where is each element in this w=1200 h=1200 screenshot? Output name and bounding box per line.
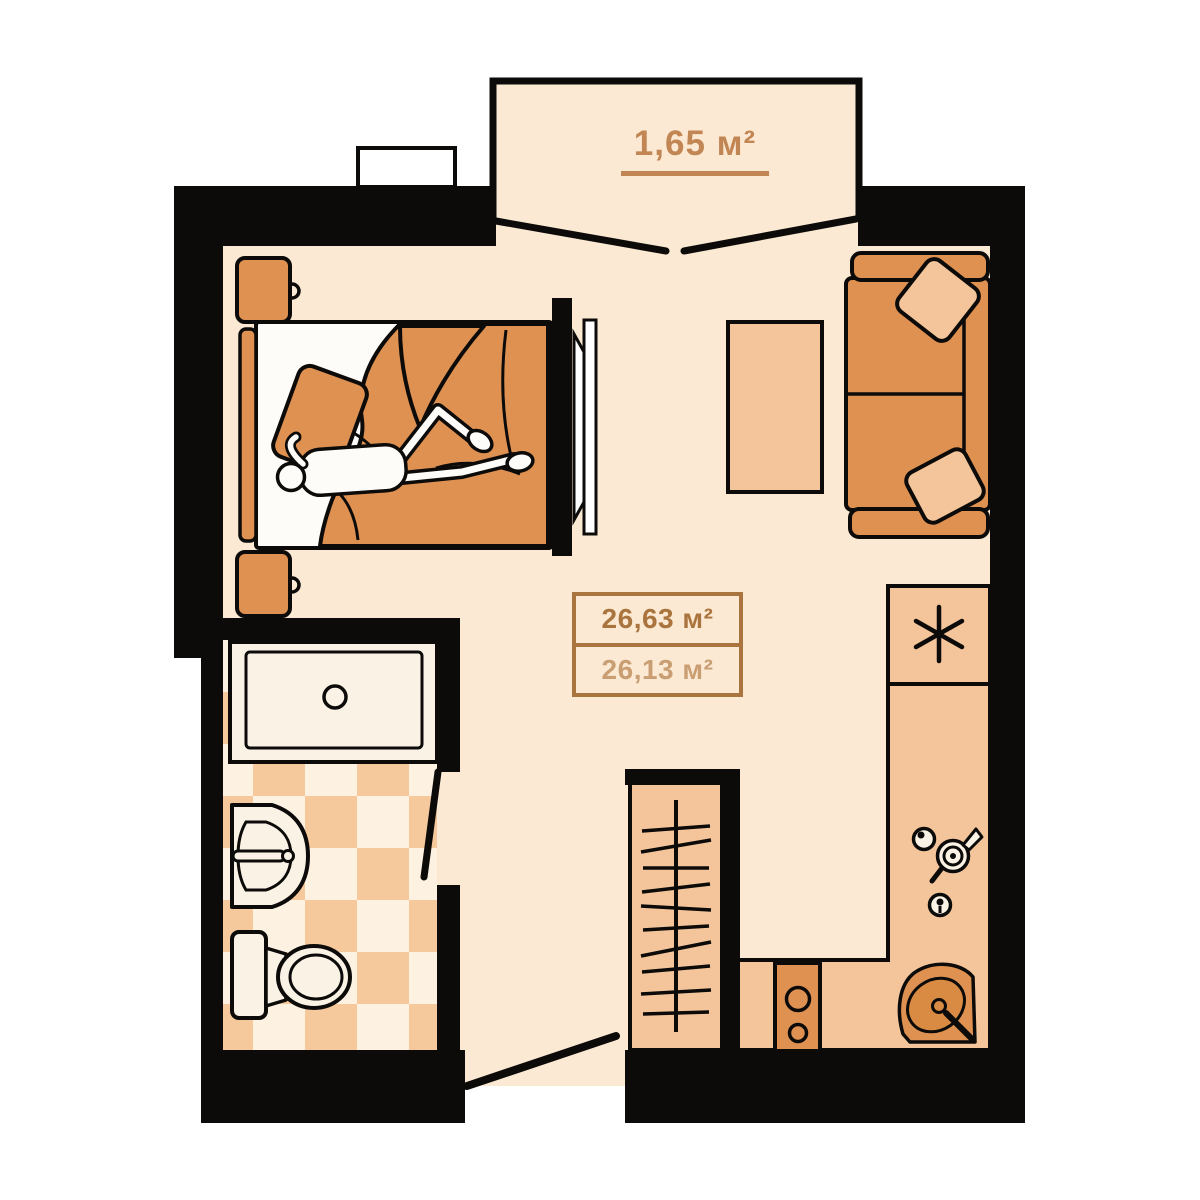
headboard [240, 329, 256, 541]
nightstand-top [237, 258, 290, 322]
window [358, 148, 455, 187]
kitchen-sink [897, 964, 975, 1042]
tv-screen [584, 320, 596, 534]
sink-faucet [233, 851, 285, 861]
balcony-opening-floor [494, 186, 858, 246]
coffee-table [728, 322, 822, 492]
floor-plan: 1,65 м² 26,63 м² 26,13 м² [0, 0, 1200, 1200]
wall-tv-partition [552, 298, 572, 556]
bed [240, 322, 552, 548]
total-area-label: 26,63 м² [576, 596, 739, 647]
balcony-label-underline [621, 171, 769, 176]
apartment-area-box: 26,63 м² 26,13 м² [572, 592, 743, 697]
wall-right [990, 186, 1025, 1123]
wardrobe [630, 783, 722, 1050]
balcony-area-text: 1,65 м² [560, 124, 830, 164]
wall-left-upper [174, 186, 223, 658]
wall-bathroom-right-upper [437, 640, 460, 772]
wall-bathroom-right-lower [437, 885, 460, 1050]
sofa-armrest-bottom [850, 509, 988, 537]
toilet-tank [232, 932, 266, 1018]
bathroom-sink [232, 805, 308, 907]
sink-tap [933, 1000, 946, 1013]
sofa [846, 253, 990, 537]
living-area-label: 26,13 м² [576, 647, 739, 694]
tv [574, 320, 596, 534]
balcony-area-label: 1,65 м² [560, 124, 830, 176]
stove [775, 963, 820, 1051]
torso [299, 443, 408, 496]
nightstand-bottom [237, 552, 290, 616]
head [278, 464, 305, 491]
wall-bathroom-top [174, 618, 460, 640]
knob-icon [914, 829, 935, 850]
wall-bottom-left [201, 1050, 465, 1123]
wall-bottom-right [625, 1050, 1025, 1123]
bathtub [230, 642, 437, 762]
